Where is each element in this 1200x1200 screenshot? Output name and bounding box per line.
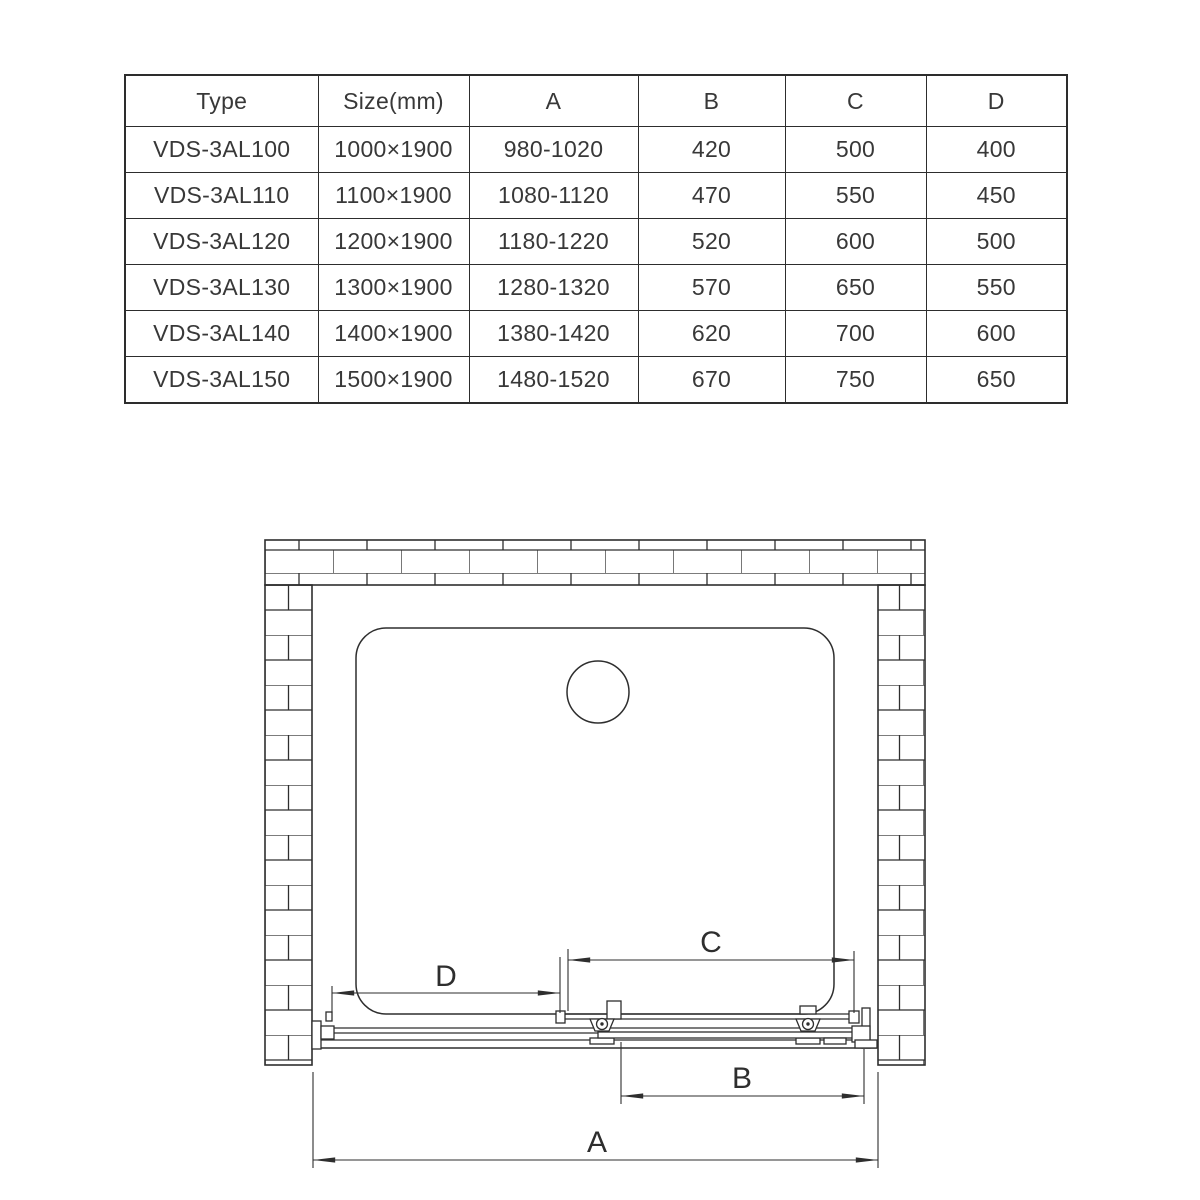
panel-clamp	[796, 1038, 820, 1044]
center-post	[607, 1001, 621, 1019]
dimension-label-a: A	[587, 1126, 607, 1159]
dimension-label-d: D	[435, 960, 457, 993]
technical-drawing: D C B A	[0, 0, 1200, 1200]
roller-axle	[806, 1022, 809, 1025]
brick-wall-top	[265, 540, 925, 585]
door-stopper	[824, 1038, 846, 1044]
sliding-door-panel	[598, 1032, 857, 1038]
brick-wall-right	[878, 585, 925, 1065]
dimension-a: A	[313, 1072, 878, 1168]
roller-axle	[600, 1022, 603, 1025]
roller-left	[590, 1019, 614, 1045]
wall-profile-left	[312, 1012, 334, 1049]
roller-right	[796, 1019, 820, 1045]
dimension-b: B	[621, 1042, 864, 1104]
dimension-label-c: C	[700, 926, 722, 959]
panel-clamp	[590, 1038, 614, 1044]
brick-wall-left	[265, 585, 312, 1065]
drain-circle	[567, 661, 629, 723]
dimension-label-b: B	[732, 1062, 752, 1095]
rail-tab-right	[800, 1006, 816, 1014]
